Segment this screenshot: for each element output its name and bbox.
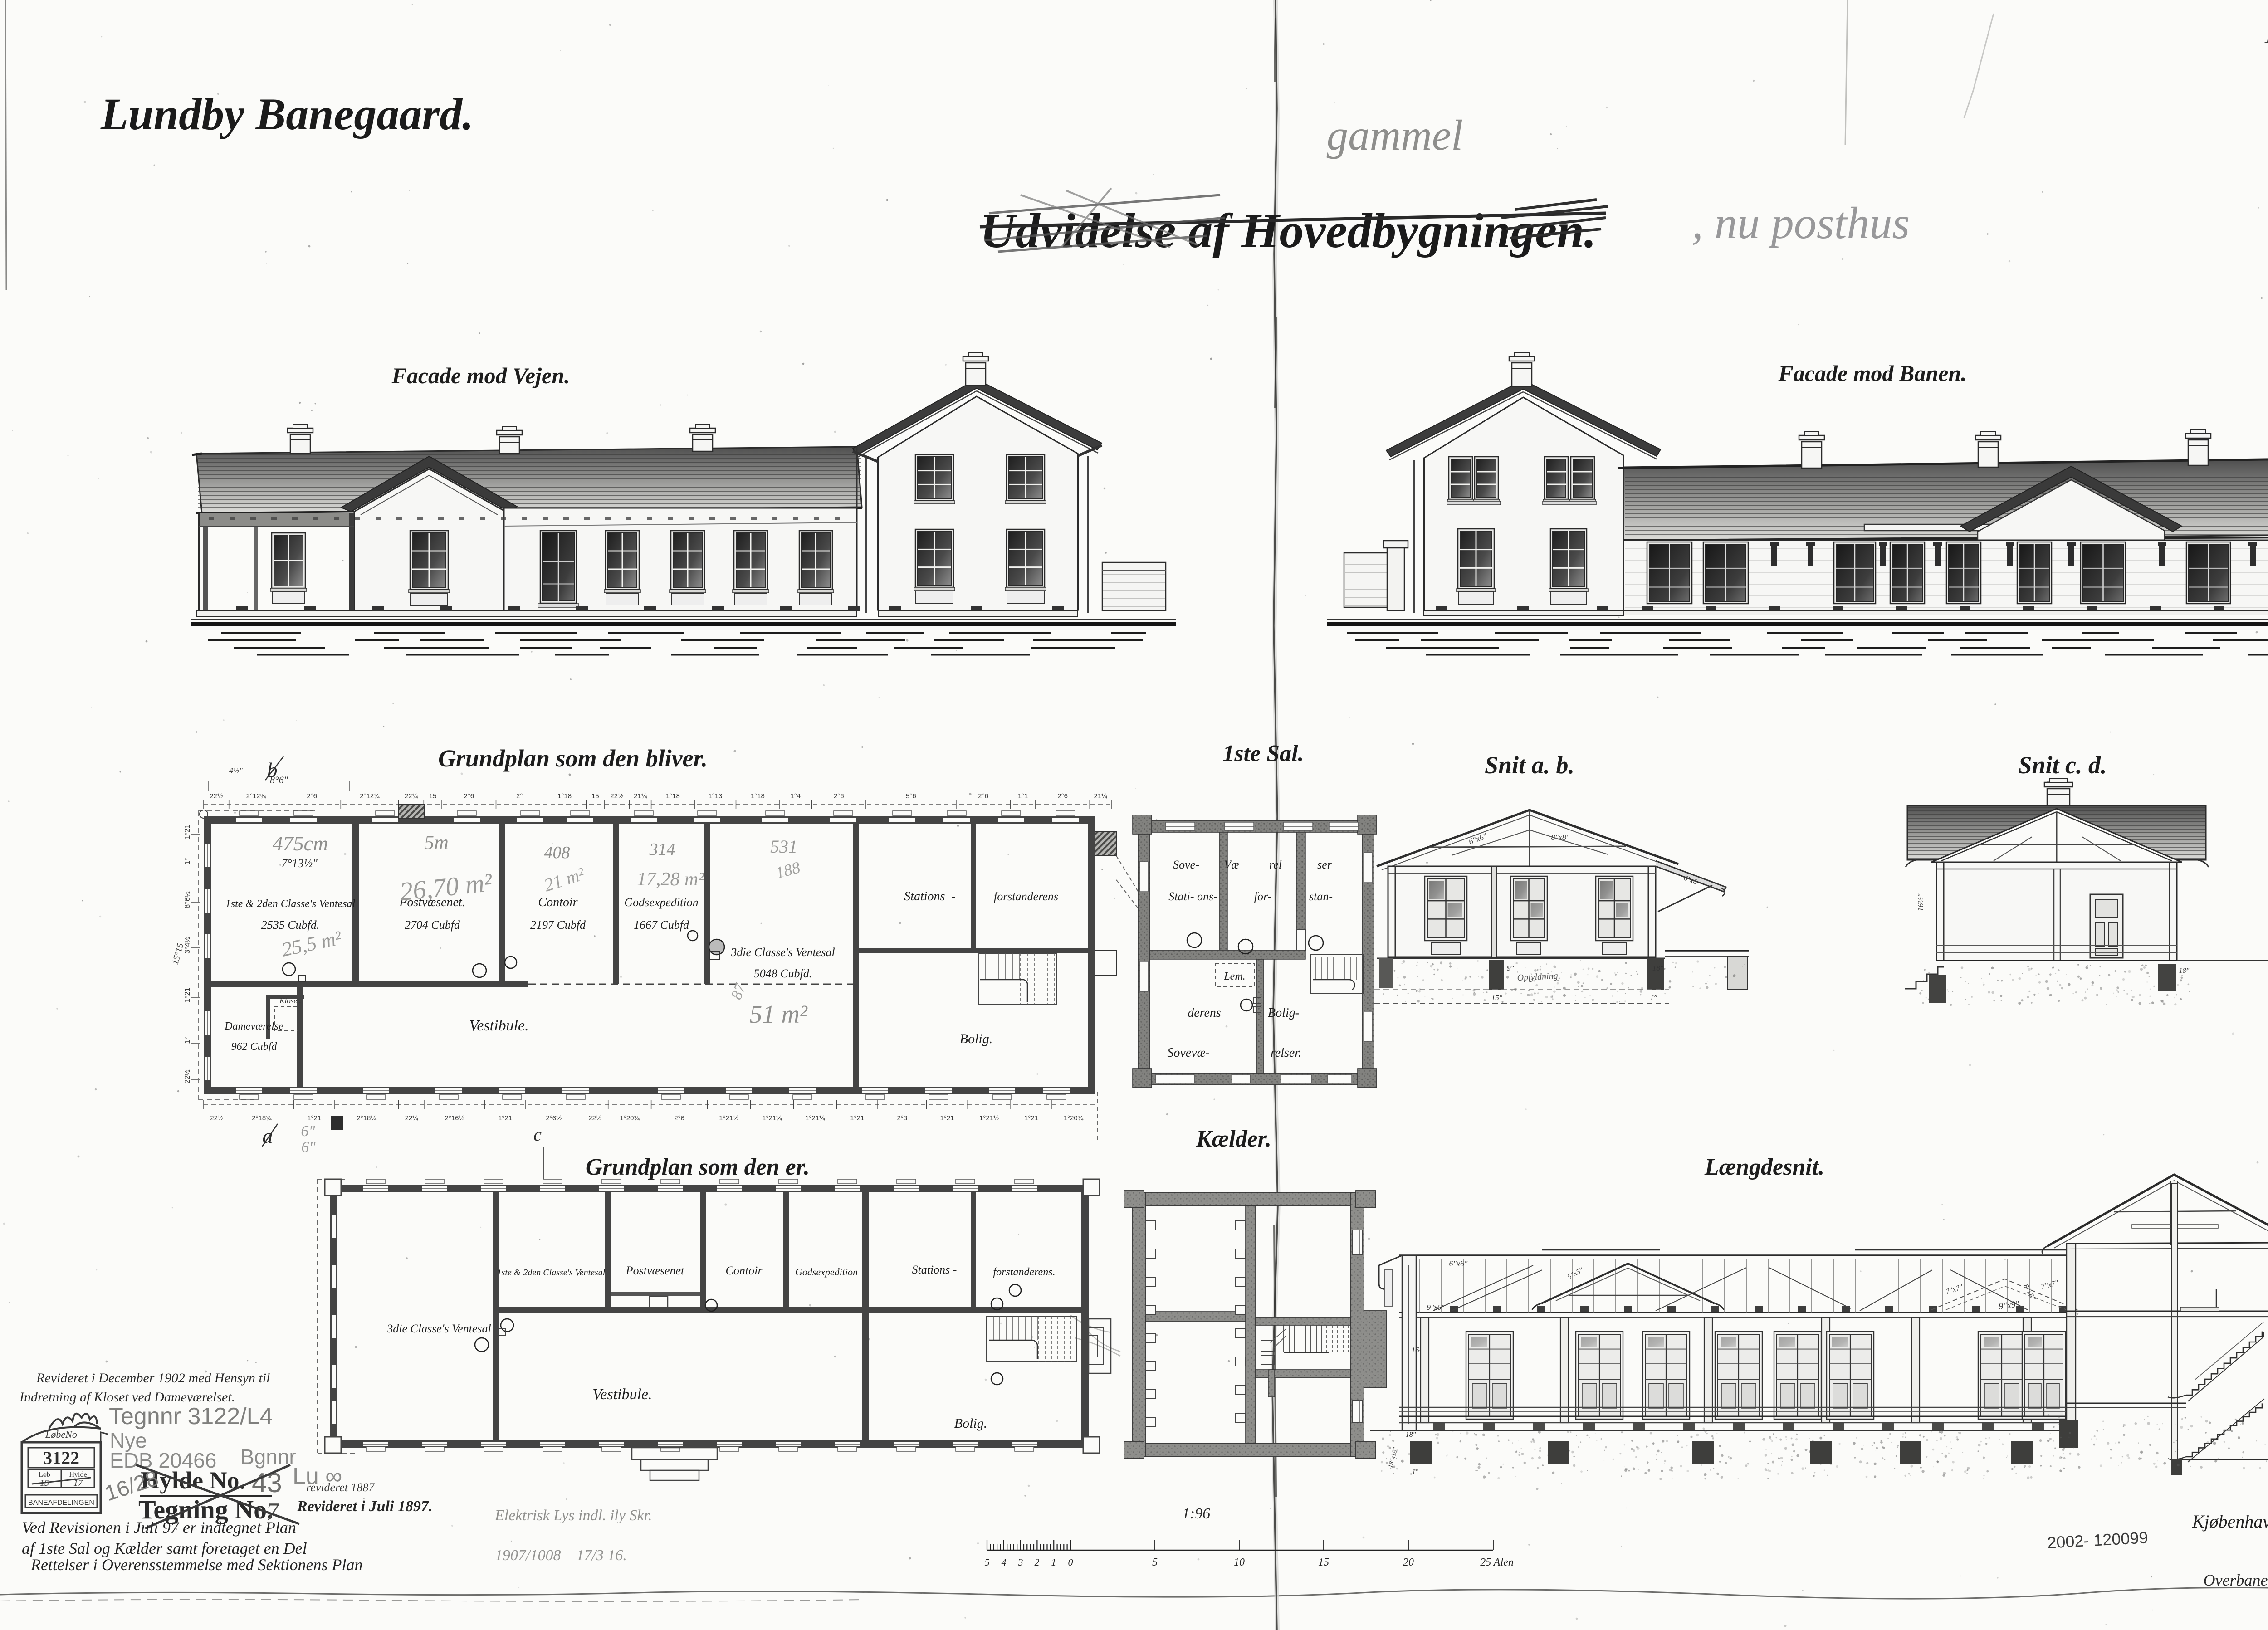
svg-text:1°20¾: 1°20¾	[1064, 1114, 1084, 1122]
svg-text:gammel: gammel	[1327, 111, 1463, 159]
svg-text:1°: 1°	[184, 1037, 191, 1044]
svg-text:962 Cubfd: 962 Cubfd	[231, 1041, 278, 1053]
svg-text:Indretning af Kloset ved Damev: Indretning af Kloset ved Dameværelset.	[19, 1390, 235, 1405]
svg-text:1°4: 1°4	[790, 792, 801, 800]
svg-text:1ste & 2den Classe's Ventesal: 1ste & 2den Classe's Ventesal	[225, 898, 356, 910]
svg-text:1:96: 1:96	[1182, 1505, 1210, 1522]
svg-text:for-: for-	[1254, 890, 1271, 903]
svg-text:LøbeNo: LøbeNo	[45, 1429, 77, 1440]
svg-text:43: 43	[252, 1468, 282, 1498]
svg-text:2°18¾: 2°18¾	[252, 1114, 272, 1122]
svg-text:Snit c. d.: Snit c. d.	[2018, 752, 2107, 779]
svg-text:22½: 22½	[184, 1069, 191, 1083]
svg-text:408: 408	[544, 843, 570, 862]
svg-text:Grundplan som den bliver.: Grundplan som den bliver.	[438, 745, 708, 772]
svg-text:Hylde: Hylde	[69, 1471, 87, 1479]
svg-text:1ste & 2den Classe's Ventesal: 1ste & 2den Classe's Ventesal	[497, 1268, 606, 1278]
svg-text:Kloset.: Kloset.	[279, 996, 301, 1005]
svg-text:22½: 22½	[610, 792, 624, 800]
svg-text:314: 314	[649, 840, 675, 859]
svg-text:Bolig.: Bolig.	[960, 1031, 993, 1046]
svg-text:Overbaneingenieur.: Overbaneingenieur.	[2204, 1571, 2268, 1589]
svg-text:2197 Cubfd: 2197 Cubfd	[530, 918, 586, 932]
svg-text:Kælder.: Kælder.	[1196, 1126, 1271, 1152]
svg-text:Bolig.: Bolig.	[954, 1416, 987, 1431]
svg-text:15: 15	[1318, 1557, 1329, 1568]
svg-text:22½: 22½	[588, 1114, 602, 1122]
svg-text:1°21: 1°21	[1024, 1114, 1038, 1122]
svg-text:forstanderens.: forstanderens.	[993, 1266, 1055, 1278]
svg-text:1°21½: 1°21½	[719, 1114, 739, 1122]
svg-text:3: 3	[1018, 1557, 1023, 1568]
svg-text:21¼: 21¼	[1094, 792, 1107, 800]
svg-text:relser.: relser.	[1271, 1046, 1301, 1060]
svg-text:Længdesnit.: Længdesnit.	[1704, 1154, 1824, 1180]
svg-text:2°12¾: 2°12¾	[246, 792, 266, 800]
svg-text:22¼: 22¼	[405, 792, 418, 800]
svg-text:4½": 4½"	[229, 766, 243, 775]
svg-text:2: 2	[1035, 1557, 1040, 1568]
svg-text:forstanderens: forstanderens	[994, 890, 1058, 903]
svg-text:Stations -: Stations -	[912, 1263, 957, 1276]
svg-text:Vestibule.: Vestibule.	[469, 1017, 528, 1034]
svg-text:1°21: 1°21	[850, 1114, 864, 1122]
svg-text:Godsexpedition: Godsexpedition	[624, 896, 698, 909]
svg-text:Lundby Banegaard.: Lundby Banegaard.	[100, 89, 474, 139]
svg-text:2°12¼: 2°12¼	[360, 792, 380, 800]
svg-text:1°: 1°	[184, 858, 191, 864]
svg-text:5°6: 5°6	[906, 792, 916, 800]
svg-text:1°21¼: 1°21¼	[762, 1114, 782, 1122]
svg-text:af 1ste Sal og Kælder samt for: af 1ste Sal og Kælder samt foretaget en …	[22, 1539, 307, 1557]
svg-text:2°6: 2°6	[674, 1114, 684, 1122]
svg-text:2°: 2°	[516, 792, 523, 800]
svg-text:2°6: 2°6	[464, 792, 474, 800]
svg-text:derens: derens	[1188, 1006, 1221, 1020]
svg-text:8°6½: 8°6½	[184, 891, 191, 908]
svg-text:4: 4	[1002, 1557, 1007, 1568]
svg-text:1°1: 1°1	[1018, 792, 1028, 800]
svg-text:1: 1	[1051, 1557, 1056, 1568]
svg-text:Revideret i Juli 1897.: Revideret i Juli 1897.	[297, 1498, 432, 1515]
svg-text:15: 15	[429, 792, 437, 800]
svg-text:Kjøbenhavn i 1886.: Kjøbenhavn i 1886.	[2192, 1511, 2268, 1532]
svg-text:1°: 1°	[1412, 1468, 1419, 1476]
svg-text:3die Classe's Ventesal: 3die Classe's Ventesal	[730, 946, 835, 959]
svg-text:17,28 m²: 17,28 m²	[637, 869, 704, 890]
svg-text:6": 6"	[301, 1123, 315, 1140]
svg-text:ser: ser	[1317, 858, 1332, 871]
svg-text:2°6: 2°6	[978, 792, 988, 800]
svg-text:3122: 3122	[43, 1448, 79, 1468]
svg-text:Revideret i December 1902 med: Revideret i December 1902 med Hensyn til	[36, 1371, 270, 1386]
svg-text:2°18¼: 2°18¼	[357, 1114, 376, 1122]
svg-text:Rettelser i Overensstemmelse m: Rettelser i Overensstemmelse med Sektion…	[30, 1556, 362, 1574]
svg-text:1°13: 1°13	[708, 792, 722, 800]
svg-text:Lem.: Lem.	[1223, 971, 1245, 982]
svg-text:20: 20	[1403, 1557, 1414, 1568]
svg-text:Stations -: Stations -	[904, 889, 956, 903]
svg-text:Contoir: Contoir	[726, 1264, 763, 1277]
svg-text:Ved Revisionen i Juli 97 er in: Ved Revisionen i Juli 97 er indtegnet Pl…	[22, 1518, 296, 1537]
svg-text:18": 18"	[1406, 1431, 1416, 1439]
svg-text:5: 5	[1152, 1557, 1158, 1568]
svg-text:Grundplan som den er.: Grundplan som den er.	[586, 1154, 810, 1180]
svg-text:revideret 1887: revideret 1887	[306, 1481, 375, 1494]
svg-text:c: c	[533, 1124, 542, 1145]
svg-text:22¼: 22¼	[405, 1114, 419, 1122]
svg-text:Dameværelse: Dameværelse	[224, 1020, 283, 1032]
svg-text:2°6: 2°6	[307, 792, 317, 800]
svg-text:1°18: 1°18	[557, 792, 572, 800]
svg-text:475cm: 475cm	[273, 832, 328, 855]
svg-text:6": 6"	[301, 1139, 316, 1156]
svg-text:Facade mod Banen.: Facade mod Banen.	[1778, 361, 1966, 386]
svg-text:Opfyldning: Opfyldning	[1517, 971, 1558, 983]
svg-text:1°21½: 1°21½	[979, 1114, 999, 1122]
svg-text:Sovevæ-: Sovevæ-	[1167, 1046, 1209, 1060]
svg-text:Vestibule.: Vestibule.	[592, 1386, 652, 1403]
svg-text:2°3: 2°3	[897, 1114, 907, 1122]
svg-text:Contoir: Contoir	[538, 895, 577, 909]
svg-text:5: 5	[985, 1557, 990, 1568]
svg-text:1°21: 1°21	[184, 987, 191, 1002]
svg-text:Godsexpedition: Godsexpedition	[795, 1266, 858, 1278]
svg-text:Væ: Væ	[1224, 858, 1239, 871]
svg-text:1°21: 1°21	[184, 824, 191, 839]
svg-text:2°6: 2°6	[1057, 792, 1068, 800]
svg-text:Tegnnr 3122/L4: Tegnnr 3122/L4	[109, 1403, 273, 1430]
svg-text:22½: 22½	[210, 1114, 224, 1122]
svg-text:1°21: 1°21	[940, 1114, 954, 1122]
svg-text:1°18: 1°18	[666, 792, 680, 800]
svg-text:9": 9"	[1507, 964, 1515, 972]
svg-text:0: 0	[1068, 1557, 1073, 1568]
svg-text:b: b	[267, 758, 278, 781]
svg-text:10: 10	[1234, 1557, 1245, 1568]
svg-text:25 Alen: 25 Alen	[1480, 1557, 1514, 1568]
svg-text:Bolig-: Bolig-	[1268, 1006, 1300, 1020]
svg-text:1°: 1°	[1650, 993, 1657, 1002]
svg-text:stan-: stan-	[1309, 890, 1333, 903]
svg-text:1°21: 1°21	[498, 1114, 512, 1122]
svg-text:22½: 22½	[210, 792, 223, 800]
svg-text:Elektrisk Lys indl. ily Skr.: Elektrisk Lys indl. ily Skr.	[494, 1507, 652, 1524]
svg-text:9"x6": 9"x6"	[1427, 1303, 1445, 1312]
svg-text:Facade mod Vejen.: Facade mod Vejen.	[391, 363, 570, 388]
svg-text:5048 Cubfd.: 5048 Cubfd.	[754, 967, 812, 980]
svg-text:16½": 16½"	[1916, 893, 1925, 912]
svg-text:1907/1008 17/3 16.: 1907/1008 17/3 16.	[495, 1547, 627, 1564]
svg-text:1°20¾: 1°20¾	[620, 1114, 640, 1122]
svg-text:1667 Cubfd: 1667 Cubfd	[634, 918, 689, 932]
svg-text:Snit a. b.: Snit a. b.	[1485, 752, 1574, 779]
svg-text:7°13½": 7°13½"	[281, 857, 318, 870]
svg-text:6"x6": 6"x6"	[1449, 1259, 1468, 1268]
svg-text:3die Classe's Ventesal: 3die Classe's Ventesal	[386, 1322, 491, 1335]
svg-text:21¼: 21¼	[634, 792, 647, 800]
svg-text:15": 15"	[1491, 993, 1503, 1002]
svg-text:1°21: 1°21	[307, 1114, 321, 1122]
svg-text:Stati- ons-: Stati- ons-	[1168, 890, 1217, 903]
svg-text:5m: 5m	[424, 831, 449, 854]
svg-text:BANEAFDELINGEN: BANEAFDELINGEN	[28, 1499, 94, 1507]
svg-text:Løb: Løb	[39, 1471, 50, 1479]
svg-text:2704 Cubfd: 2704 Cubfd	[405, 918, 460, 932]
svg-text:2°6½: 2°6½	[546, 1114, 562, 1122]
svg-text:1°18: 1°18	[751, 792, 765, 800]
svg-text:8"x8": 8"x8"	[1551, 833, 1570, 842]
svg-text:15: 15	[591, 792, 599, 800]
svg-text:2°16½: 2°16½	[445, 1114, 464, 1122]
svg-text:, nu posthus: , nu posthus	[1692, 198, 1910, 248]
svg-text:1ste Sal.: 1ste Sal.	[1222, 741, 1304, 766]
svg-text:Postvæsenet: Postvæsenet	[626, 1264, 684, 1277]
svg-text:18": 18"	[1652, 964, 1664, 972]
svg-text:D 1: D 1	[2264, 17, 2268, 49]
svg-text:Sove-: Sove-	[1173, 858, 1199, 871]
svg-text:2°6: 2°6	[834, 792, 844, 800]
svg-text:rel: rel	[1269, 858, 1282, 871]
svg-text:51 m²: 51 m²	[749, 1000, 807, 1029]
svg-text:2535 Cubfd.: 2535 Cubfd.	[261, 918, 320, 932]
svg-text:1°21¼: 1°21¼	[805, 1114, 825, 1122]
svg-text:531: 531	[770, 836, 797, 857]
svg-text:18": 18"	[2179, 967, 2190, 975]
